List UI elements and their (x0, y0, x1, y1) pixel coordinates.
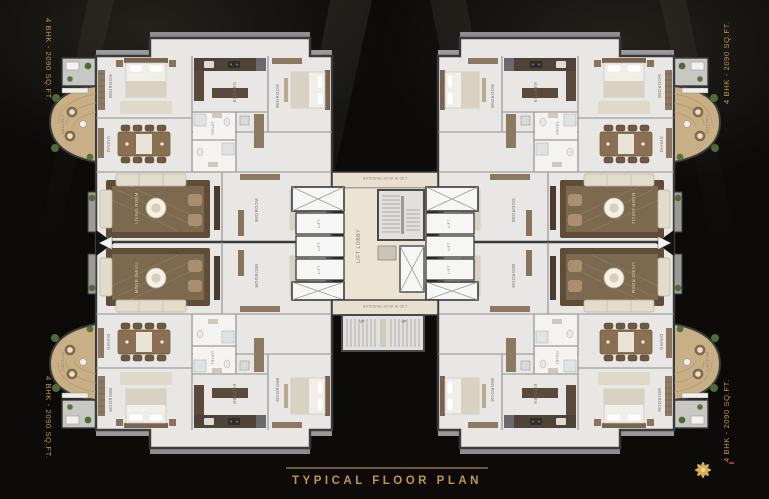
unit-label-bottom-left: 4 BHK - 2090 SQ.FT. (44, 376, 53, 459)
unit-label-top-left: 4 BHK - 2090 SQ.FT. (44, 18, 53, 101)
lift-label: LIFT (447, 265, 451, 274)
unit-label-bottom-right: 4 BHK - 2090 SQ.FT. (722, 379, 731, 462)
apartment-top-left (50, 32, 332, 244)
up-label: UP (360, 320, 366, 324)
up-label: UP (402, 320, 408, 324)
apartment-bottom-right (438, 242, 720, 454)
passage-label: 1.50 M WIDE PASSAGE (362, 176, 407, 180)
lift-lobby-label: LIFT LOBBY (356, 229, 362, 263)
passage-label: 1.50 M WIDE PASSAGE (362, 304, 407, 308)
apartment-bottom-left (50, 242, 332, 454)
duct (378, 246, 396, 260)
lift-label: LIFT (447, 219, 451, 228)
brand-mark-accent (729, 462, 734, 464)
lift-bank-right: LIFT LIFT LIFT (426, 187, 478, 300)
lift-label: LIFT (317, 265, 321, 274)
apartment-top-right (438, 32, 720, 244)
lift-label: LIFT (447, 242, 451, 251)
lift-label: LIFT (317, 242, 321, 251)
staircase-main (378, 190, 424, 240)
lift-bank-left: LIFT LIFT LIFT (292, 187, 344, 300)
page-title: TYPICAL FLOOR PLAN (292, 475, 482, 487)
floor-plan-poster: BALCONY (0, 0, 769, 499)
unit-label-top-right: 4 BHK - 2090 SQ.FT. (722, 21, 731, 104)
lift-label: LIFT (317, 219, 321, 228)
floor-plan-canvas: BALCONY (0, 0, 769, 499)
staircase-lower: UP UP (342, 315, 424, 351)
